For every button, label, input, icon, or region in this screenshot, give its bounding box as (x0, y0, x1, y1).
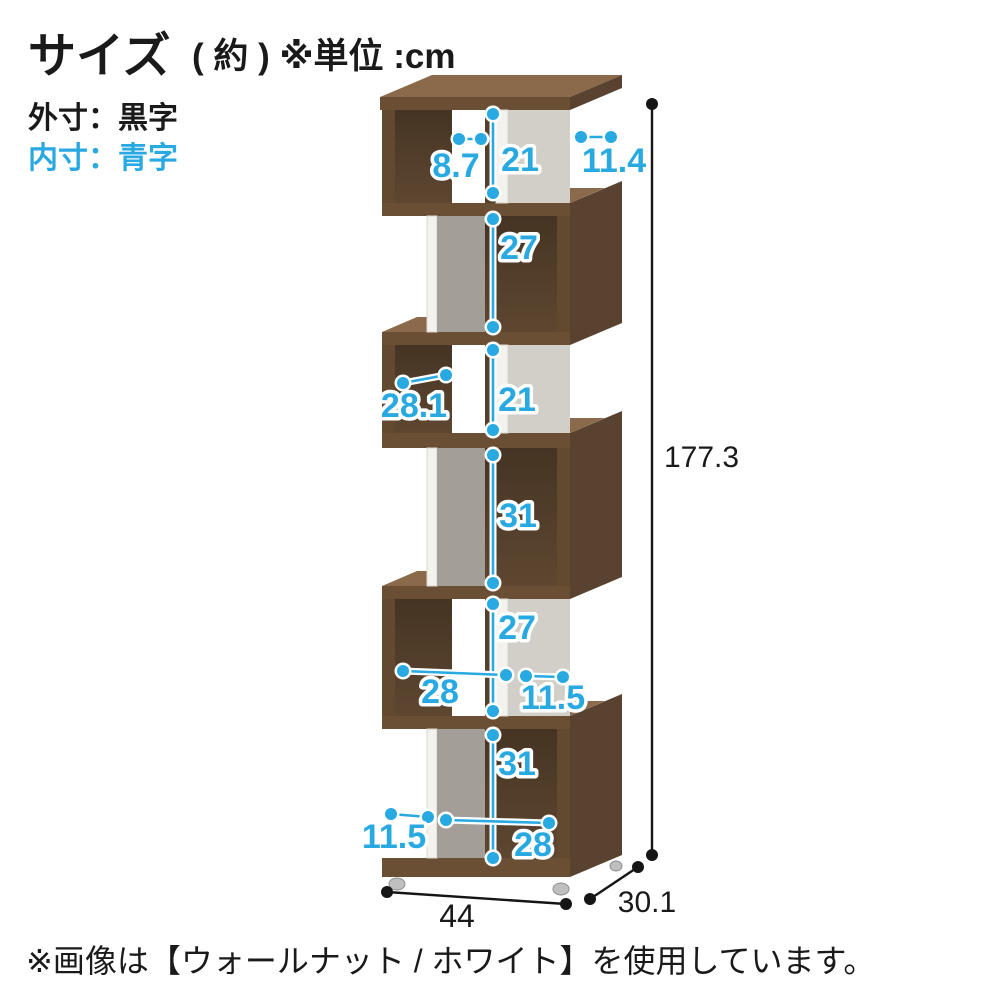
page-title-note: ( 約 ) ※単位 :cm (192, 37, 455, 76)
dim-label-shelf6-width: 28 (514, 826, 552, 864)
dim-dot (487, 577, 499, 589)
dim-label-overall-width: 44 (439, 898, 475, 934)
dim-dot (487, 187, 499, 199)
dim-dot (475, 133, 487, 145)
dim-dot (487, 344, 499, 356)
size-diagram-page: サイズ ( 約 ) ※単位 :cm 外寸：黒字 内寸：青字 (0, 0, 1000, 1000)
shelf4-right-wall (557, 448, 570, 586)
footer-note: ※画像は【ウォールナット / ホワイト】を使用しています。 (26, 943, 875, 979)
shelf4-white-divider (427, 448, 437, 586)
dim-label-shelf3-width: 28.1 (381, 387, 447, 425)
dim-shelf5-right-depth: 11.5 (518, 668, 586, 718)
dim-label-shelf1-right-depth: 11.4 (582, 142, 646, 180)
dim-shelf6-left-depth: 11.5 (362, 806, 437, 857)
dim-dot (453, 133, 465, 145)
dim-overall-height: 177.3 (646, 98, 739, 861)
shelf-band-1 (382, 203, 570, 216)
shelf6-right-wall (557, 729, 570, 858)
dim-dot (440, 369, 452, 381)
dim-label-overall-depth: 30.1 (618, 886, 676, 919)
shelf-band-5 (382, 716, 570, 729)
dim-dot (487, 213, 499, 225)
top-board-front (380, 97, 570, 110)
dim-dot (560, 898, 572, 910)
dim-label-shelf6-left-depth: 11.5 (362, 818, 426, 856)
shelf-band-2 (382, 332, 570, 345)
dim-dot (500, 669, 512, 681)
shelf2-white-panel-face (437, 216, 485, 332)
dim-label-shelf1-left-width: 8.7 (432, 147, 479, 185)
shelf2-white-divider (427, 216, 437, 332)
dim-dot (487, 729, 499, 741)
dim-dot (487, 449, 499, 461)
size-diagram: サイズ ( 約 ) ※単位 :cm 外寸：黒字 内寸：青字 (0, 0, 1000, 1000)
shelf-band-4 (382, 586, 570, 599)
dim-dot (487, 705, 499, 717)
dim-dot (440, 814, 452, 826)
dim-dot (487, 108, 499, 120)
dim-label-shelf3-height: 21 (498, 381, 536, 419)
dim-overall-depth: 30.1 (584, 861, 676, 919)
dim-dot (487, 424, 499, 436)
shelf4-white-panel-face (437, 448, 485, 586)
dim-dot (381, 886, 393, 898)
dim-dot (487, 852, 499, 864)
dim-dot (646, 98, 658, 110)
dim-dot (397, 665, 409, 677)
shelf1-left-wall (382, 110, 395, 203)
shelf5-left-wall (382, 599, 395, 716)
legend-outer-dimensions: 外寸：黒字 (28, 101, 178, 135)
dim-label-shelf6-height: 31 (498, 745, 536, 783)
front-right-foot (553, 883, 569, 895)
rear-right-foot (610, 861, 622, 871)
dim-overall-width: 44 (381, 886, 572, 934)
dim-shelf1-right-depth: 11.4 (573, 129, 647, 181)
dim-label-shelf2-height: 27 (500, 229, 538, 267)
dim-dot (487, 321, 499, 333)
shelf6-white-divider (427, 729, 437, 858)
dim-label-shelf5-width: 28 (421, 673, 459, 711)
dim-label-shelf5-right-depth: 11.5 (521, 679, 585, 717)
dim-label-shelf4-height: 31 (499, 497, 537, 535)
legend-inner-dimensions: 内寸：青字 (28, 141, 178, 175)
shelf-band-3 (382, 433, 570, 448)
shelf2-right-depth-face (570, 181, 622, 345)
dim-dot (646, 849, 658, 861)
dim-dot (584, 893, 596, 905)
shelf4-right-depth-face (570, 411, 622, 599)
shelf6-right-depth-face (570, 694, 622, 877)
dim-label-overall-height: 177.3 (664, 441, 739, 474)
shelf2-right-wall (557, 216, 570, 332)
shelf6-white-panel-face (437, 729, 485, 858)
dim-label-shelf1-height: 21 (501, 141, 539, 179)
page-title: サイズ (28, 30, 171, 83)
dim-label-shelf5-height: 27 (498, 609, 536, 647)
dim-dot (632, 861, 644, 873)
